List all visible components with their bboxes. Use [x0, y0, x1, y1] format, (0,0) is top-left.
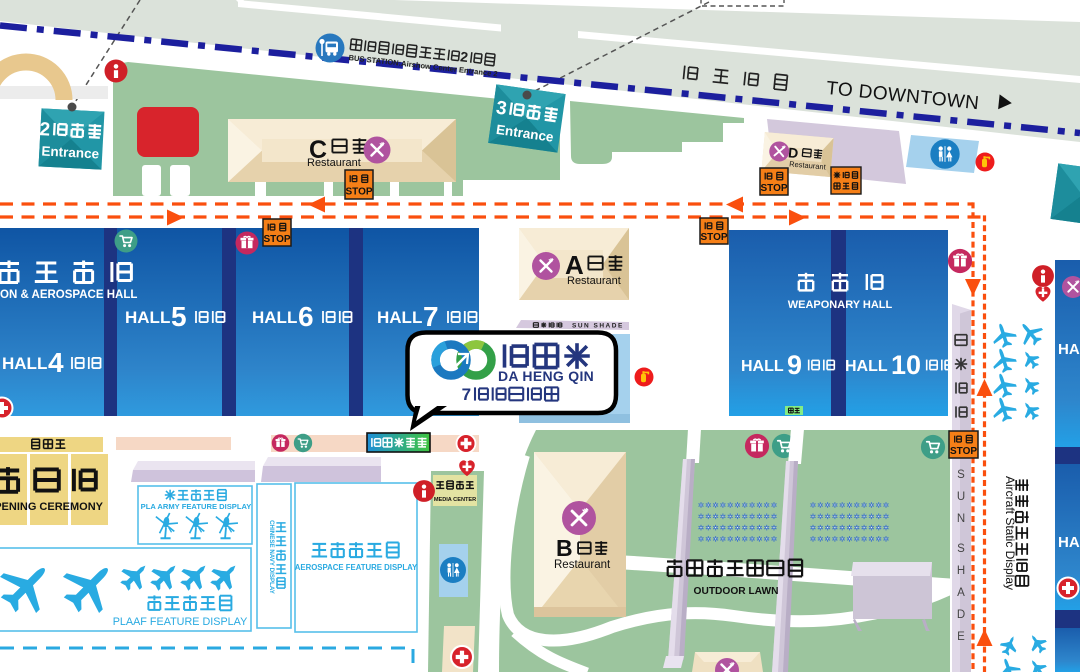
svg-text:HALL: HALL	[252, 308, 297, 327]
svg-text:S: S	[957, 469, 965, 481]
svg-text:HALL: HALL	[845, 358, 888, 375]
svg-text:HALL: HALL	[741, 358, 784, 375]
svg-text:E: E	[957, 631, 965, 643]
svg-text:STOP: STOP	[700, 232, 727, 243]
svg-text:H: H	[957, 565, 965, 577]
svg-text:OPENING CEREMONY: OPENING CEREMONY	[0, 501, 104, 513]
svg-text:5: 5	[171, 301, 187, 332]
svg-text:A: A	[957, 587, 965, 599]
svg-text:MEDIA CENTER: MEDIA CENTER	[434, 497, 476, 503]
svg-text:WEAPONARY HALL: WEAPONARY HALL	[788, 299, 893, 311]
svg-text:6: 6	[298, 301, 314, 332]
svg-text:Restaurant: Restaurant	[567, 275, 621, 287]
svg-text:Restaurant: Restaurant	[307, 157, 361, 169]
svg-text:PLAAF FEATURE DISPLAY: PLAAF FEATURE DISPLAY	[113, 616, 248, 628]
svg-text:OUTDOOR LAWN: OUTDOOR LAWN	[694, 586, 779, 597]
svg-text:HALL: HALL	[377, 308, 422, 327]
svg-text:SUN SHADE: SUN SHADE	[572, 323, 624, 330]
svg-text:AEROSPACE FEATURE DISPLAY: AEROSPACE FEATURE DISPLAY	[295, 563, 418, 572]
svg-text:ON & AEROSPACE HALL: ON & AEROSPACE HALL	[0, 289, 137, 301]
svg-text:U: U	[957, 491, 965, 503]
svg-text:STOP: STOP	[950, 446, 977, 457]
svg-text:HALL: HALL	[1058, 341, 1080, 358]
svg-text:HALL: HALL	[1058, 534, 1080, 551]
svg-text:Aircraft Static Display: Aircraft Static Display	[1003, 476, 1017, 590]
svg-text:HALL: HALL	[2, 354, 47, 373]
svg-text:2: 2	[39, 119, 51, 141]
svg-text:STOP: STOP	[263, 234, 290, 245]
svg-text:CHINESE NAVY DISPLAY: CHINESE NAVY DISPLAY	[268, 520, 275, 595]
svg-text:7: 7	[423, 301, 439, 332]
svg-text:D: D	[957, 609, 965, 621]
svg-text:STOP: STOP	[760, 183, 787, 194]
svg-text:B: B	[556, 535, 573, 561]
svg-text:Entrance: Entrance	[41, 143, 100, 161]
svg-text:DA HENG QIN: DA HENG QIN	[498, 368, 594, 384]
svg-text:STOP: STOP	[345, 187, 372, 198]
svg-text:HALL: HALL	[125, 308, 170, 327]
svg-text:N: N	[957, 513, 965, 525]
svg-text:9: 9	[787, 350, 802, 380]
svg-text:PLA ARMY FEATURE DISPLAY: PLA ARMY FEATURE DISPLAY	[141, 502, 252, 511]
svg-text:4: 4	[48, 347, 64, 378]
svg-text:Restaurant: Restaurant	[554, 559, 611, 571]
svg-text:10: 10	[891, 350, 921, 380]
svg-text:7: 7	[462, 385, 471, 404]
svg-text:S: S	[957, 543, 965, 555]
